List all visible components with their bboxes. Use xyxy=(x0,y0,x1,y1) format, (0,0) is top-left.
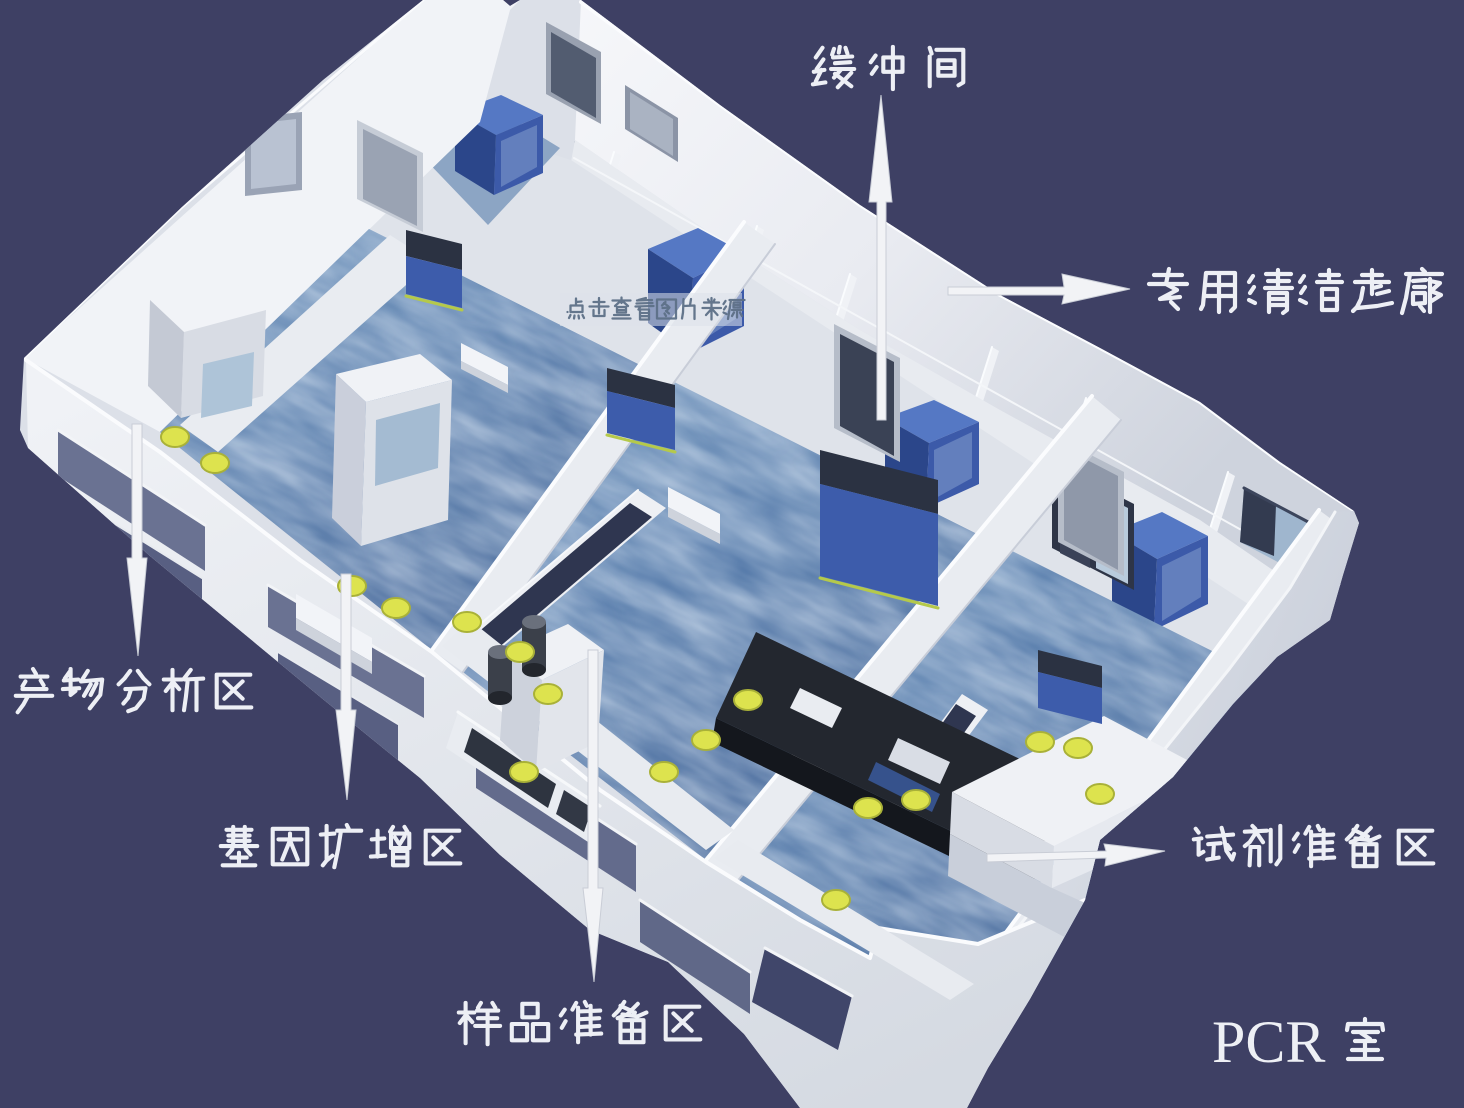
svg-text:PCR: PCR xyxy=(1212,1009,1325,1075)
